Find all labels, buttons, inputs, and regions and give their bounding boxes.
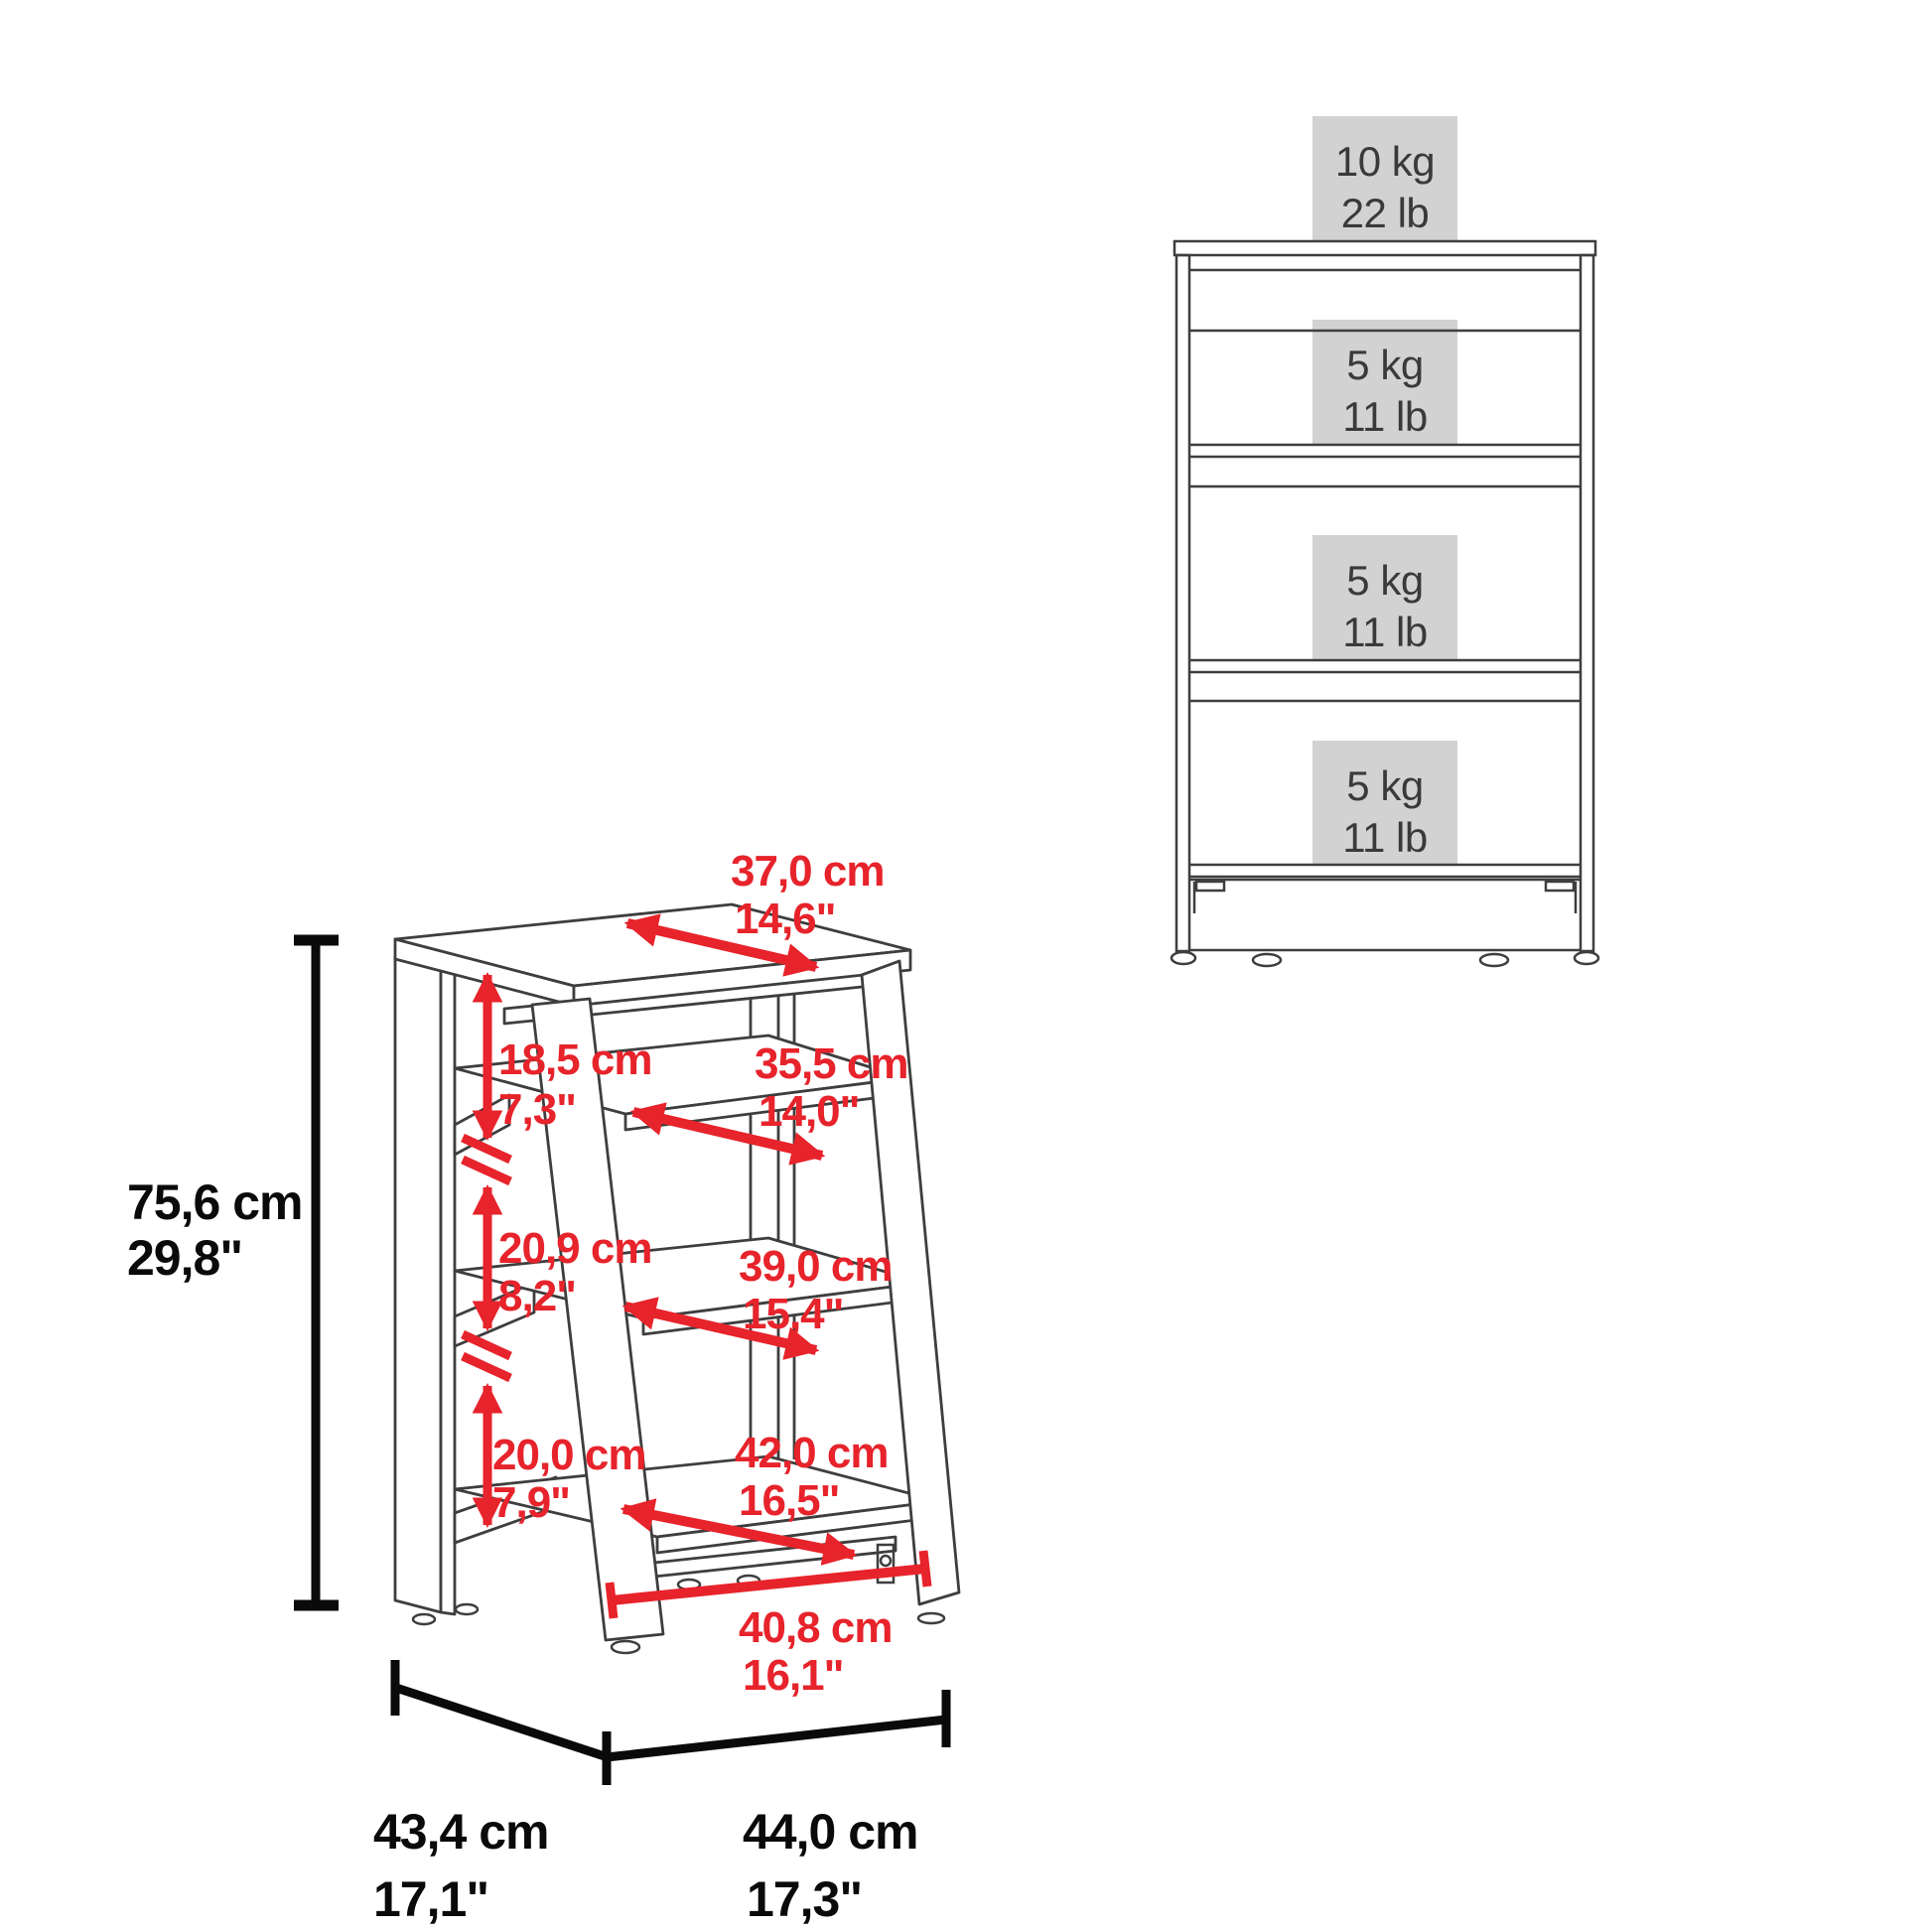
label-gap-bottom-cm: 20,0 cm — [492, 1431, 645, 1479]
break-mark — [463, 1138, 510, 1160]
label-base-inner-width-in: 16,1" — [743, 1651, 844, 1700]
label-gap-bottom-in: 7,9" — [492, 1478, 570, 1527]
leg-bracket-hole — [881, 1556, 891, 1566]
capacity-shelf2-kg: 5 kg — [1346, 557, 1423, 604]
capacity-shelf2-lb: 11 lb — [1342, 609, 1427, 655]
back-left-leg-side — [395, 954, 441, 1612]
label-shelf1-depth-in: 14,0" — [759, 1087, 860, 1136]
label-shelf2-depth-cm: 39,0 cm — [739, 1242, 892, 1291]
label-base-depth-in: 17,1" — [373, 1871, 488, 1927]
fv-left-side-panel — [1176, 255, 1189, 951]
back-left-foot-2 — [456, 1604, 478, 1614]
capacity-top-lb: 22 lb — [1341, 190, 1430, 236]
label-gap-top-in: 7,3" — [498, 1085, 576, 1134]
capacity-top-kg: 10 kg — [1335, 138, 1435, 185]
left-isometric-view: 37,0 cm 14,6" 18,5 cm 7,3" 35,5 cm 14,0"… — [127, 847, 959, 1927]
label-top-depth-in: 14,6" — [735, 895, 836, 943]
capacity-shelf3-kg: 5 kg — [1346, 762, 1423, 809]
front-right-foot — [918, 1613, 944, 1623]
label-overall-height-cm: 75,6 cm — [127, 1174, 302, 1230]
front-left-foot — [612, 1641, 639, 1653]
label-base-depth-cm: 43,4 cm — [373, 1804, 548, 1860]
right-front-view: 10 kg 22 lb 5 kg 11 lb 5 kg 11 lb 5 kg 1… — [1172, 116, 1598, 966]
dim-tick — [923, 1551, 927, 1587]
diagram-canvas: 37,0 cm 14,6" 18,5 cm 7,3" 35,5 cm 14,0"… — [0, 0, 1932, 1932]
label-shelf2-depth-in: 15,4" — [743, 1290, 844, 1338]
dim-line-base-width — [607, 1720, 946, 1757]
capacity-shelf1-kg: 5 kg — [1346, 342, 1423, 388]
label-shelf3-depth-cm: 42,0 cm — [735, 1429, 888, 1477]
label-gap-top-cm: 18,5 cm — [498, 1035, 651, 1084]
dim-tick — [610, 1583, 614, 1618]
label-shelf3-depth-in: 16,5" — [739, 1476, 840, 1525]
capacity-shelf3-lb: 11 lb — [1342, 814, 1427, 861]
label-overall-height-in: 29,8" — [127, 1230, 242, 1286]
fv-base-brackets — [1194, 882, 1576, 913]
break-mark — [463, 1334, 510, 1356]
fv-right-side-panel — [1581, 255, 1593, 951]
label-base-width-cm: 44,0 cm — [743, 1804, 917, 1860]
dim-line-base-depth — [396, 1688, 608, 1757]
label-shelf1-depth-cm: 35,5 cm — [755, 1039, 907, 1088]
label-gap-middle-cm: 20,9 cm — [498, 1224, 651, 1273]
label-gap-middle-in: 8,2" — [498, 1272, 576, 1320]
capacity-shelf1-lb: 11 lb — [1342, 393, 1427, 440]
break-mark — [463, 1160, 510, 1181]
fv-top-panel — [1174, 241, 1595, 255]
label-base-width-in: 17,3" — [747, 1871, 862, 1927]
furniture-dimension-diagram: 37,0 cm 14,6" 18,5 cm 7,3" 35,5 cm 14,0"… — [0, 0, 1932, 1932]
fv-feet — [1172, 952, 1598, 966]
back-left-foot — [413, 1614, 435, 1624]
label-base-inner-width-cm: 40,8 cm — [739, 1603, 892, 1652]
break-mark — [463, 1356, 510, 1378]
label-top-depth-cm: 37,0 cm — [731, 847, 884, 896]
back-left-leg-front — [441, 953, 455, 1614]
